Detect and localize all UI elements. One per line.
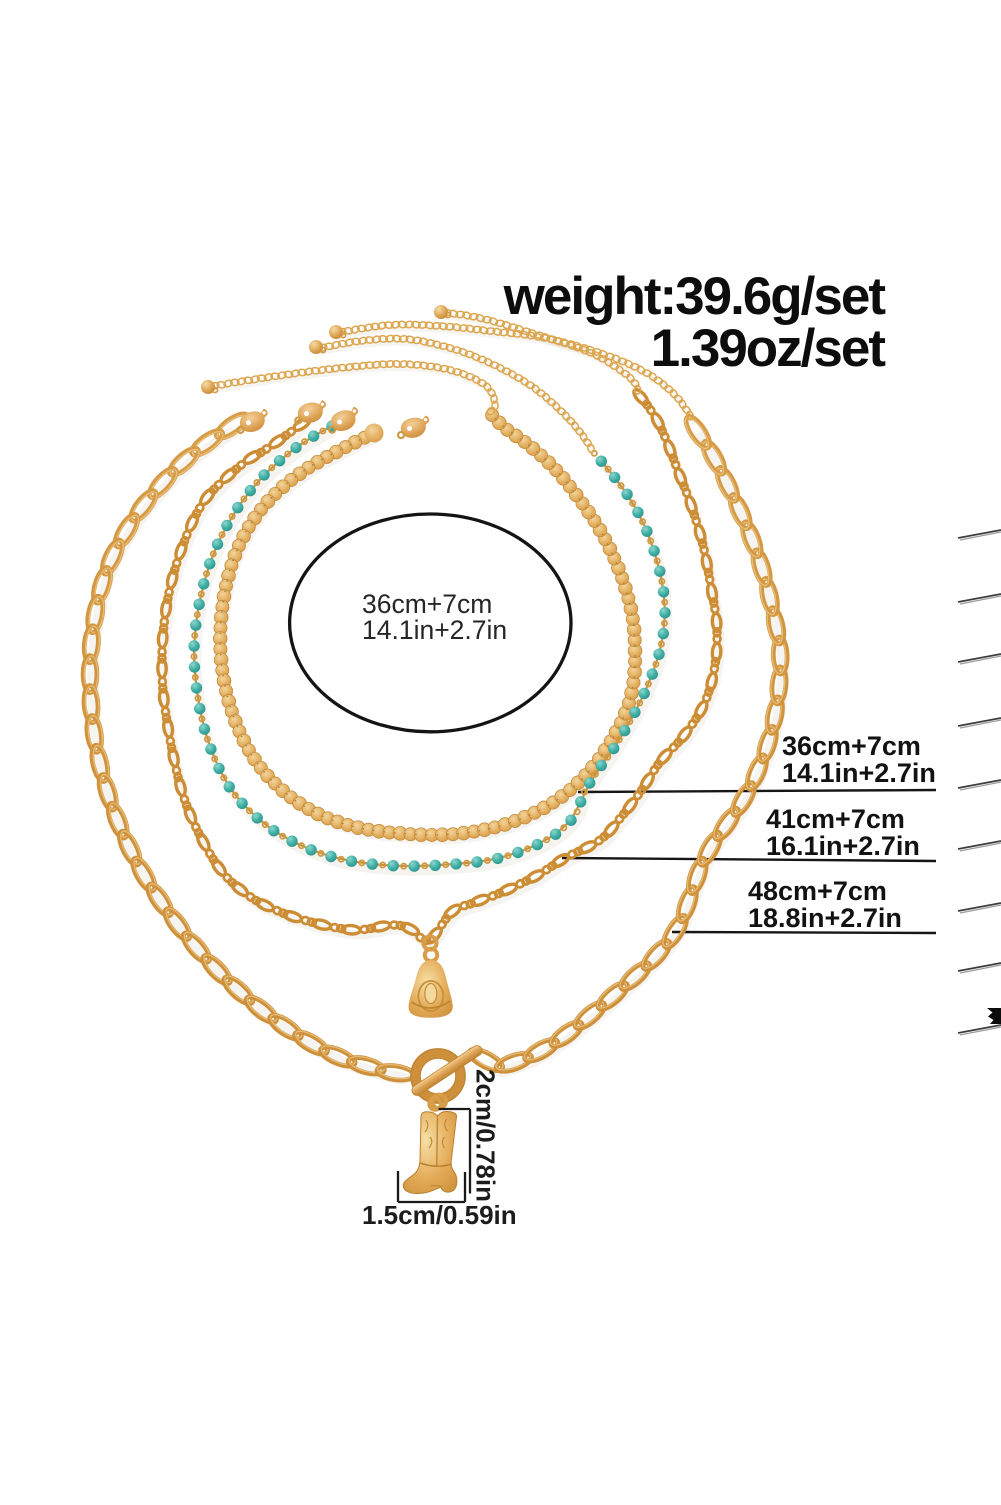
svg-text:48cm+7cm: 48cm+7cm: [748, 876, 887, 906]
svg-text:14.1in+2.7in: 14.1in+2.7in: [362, 615, 507, 645]
svg-text:18.8in+2.7in: 18.8in+2.7in: [748, 903, 902, 933]
svg-text:1.39oz/set: 1.39oz/set: [651, 319, 886, 378]
svg-text:36cm+7cm: 36cm+7cm: [782, 731, 921, 761]
svg-text:2cm/0.78in: 2cm/0.78in: [471, 1069, 501, 1202]
svg-text:14.1in+2.7in: 14.1in+2.7in: [782, 758, 936, 788]
svg-text:weight:39.6g/set: weight:39.6g/set: [503, 267, 886, 326]
svg-text:16.1in+2.7in: 16.1in+2.7in: [766, 831, 920, 861]
svg-text:41cm+7cm: 41cm+7cm: [766, 804, 905, 834]
svg-text:1.5cm/0.59in: 1.5cm/0.59in: [362, 1200, 517, 1230]
